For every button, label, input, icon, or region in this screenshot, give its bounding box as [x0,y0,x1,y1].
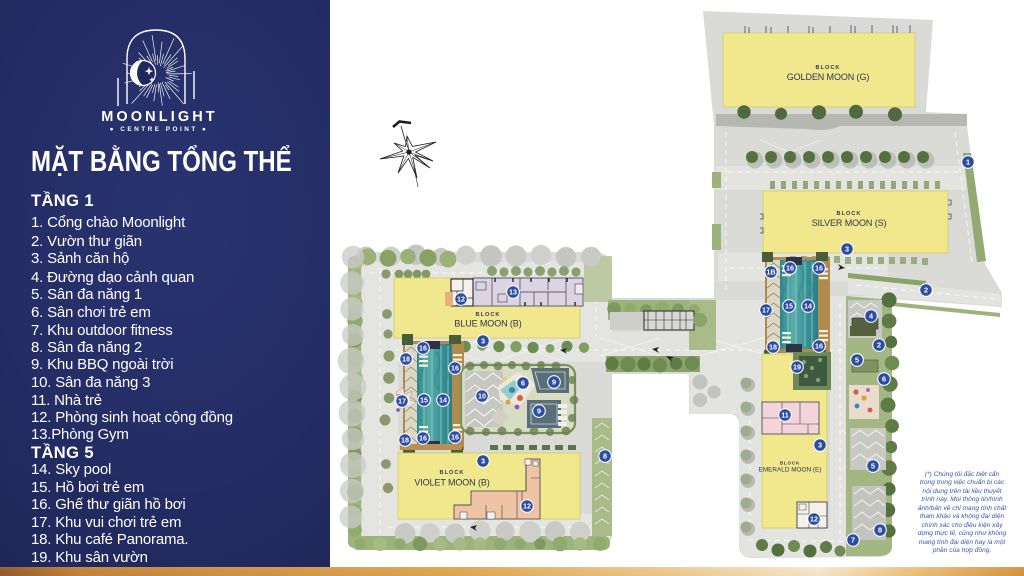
svg-text:15: 15 [420,396,428,405]
svg-text:1B: 1B [766,268,775,277]
svg-text:16: 16 [451,433,459,442]
svg-text:BLOCK: BLOCK [780,461,800,466]
svg-text:7: 7 [851,536,855,545]
svg-text:15: 15 [785,302,793,311]
svg-text:6: 6 [521,379,525,388]
svg-text:EMERALD MOON (E): EMERALD MOON (E) [759,467,822,474]
svg-text:2: 2 [877,341,881,350]
svg-text:12: 12 [810,515,818,524]
svg-text:16: 16 [815,342,823,351]
svg-text:GOLDEN MOON (G): GOLDEN MOON (G) [787,72,870,82]
svg-text:8: 8 [603,452,607,461]
svg-text:9: 9 [537,407,541,416]
svg-text:6: 6 [882,375,886,384]
svg-text:18: 18 [769,343,777,352]
svg-text:16: 16 [815,264,823,273]
svg-text:17: 17 [762,306,770,315]
svg-text:11: 11 [781,411,789,420]
svg-text:16: 16 [419,434,427,443]
svg-text:16: 16 [451,364,459,373]
svg-text:2: 2 [924,286,928,295]
svg-text:19: 19 [793,363,801,372]
svg-text:12: 12 [457,295,465,304]
svg-text:16: 16 [419,344,427,353]
svg-text:10: 10 [478,392,486,401]
svg-text:BLOCK: BLOCK [440,470,465,476]
svg-text:3: 3 [481,457,485,466]
svg-text:14: 14 [439,396,447,405]
svg-text:8: 8 [878,526,882,535]
svg-text:BLOCK: BLOCK [816,65,841,71]
svg-text:BLOCK: BLOCK [476,312,501,318]
svg-text:BLUE MOON (B): BLUE MOON (B) [454,319,521,329]
svg-text:3: 3 [481,337,485,346]
svg-text:18: 18 [401,436,409,445]
svg-text:SILVER MOON (S): SILVER MOON (S) [812,218,887,228]
svg-text:9: 9 [552,378,556,387]
svg-text:18: 18 [402,355,410,364]
svg-text:16: 16 [786,264,794,273]
svg-text:3: 3 [845,245,849,254]
svg-text:17: 17 [398,397,406,406]
svg-text:3: 3 [818,441,822,450]
svg-text:13: 13 [509,288,517,297]
svg-text:BLOCK: BLOCK [837,211,862,217]
svg-text:12: 12 [523,502,531,511]
svg-text:VIOLET MOON (B): VIOLET MOON (B) [414,478,489,488]
svg-text:14: 14 [804,302,812,311]
